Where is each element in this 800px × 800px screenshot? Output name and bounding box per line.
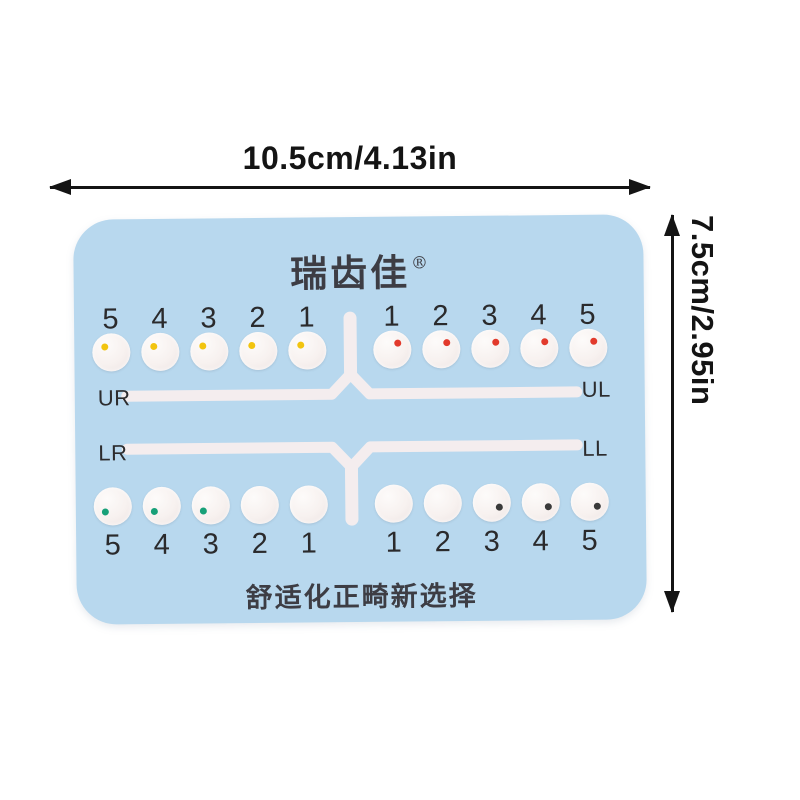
quadrant-label-lr: LR bbox=[98, 440, 127, 466]
tooth-number-label: 1 bbox=[300, 529, 316, 557]
upper-track-stem bbox=[350, 318, 351, 374]
color-dot bbox=[496, 503, 503, 510]
tooth-number-label: 5 bbox=[581, 527, 597, 555]
color-dot bbox=[541, 338, 548, 345]
bracket-row-UR: 54321 bbox=[86, 303, 332, 371]
tooth-number-label: 4 bbox=[151, 305, 167, 333]
bracket-disc bbox=[239, 332, 277, 370]
color-dot bbox=[249, 342, 256, 349]
bracket-cell: 2 bbox=[233, 304, 283, 370]
tooth-number-label: 5 bbox=[102, 305, 118, 333]
tooth-number-label: 3 bbox=[202, 530, 218, 558]
bracket-disc bbox=[569, 329, 607, 367]
bracket-disc bbox=[472, 484, 510, 522]
tooth-number-label: 4 bbox=[532, 527, 548, 555]
archwire-tracks bbox=[73, 214, 647, 624]
bracket-cell: 5 bbox=[563, 301, 613, 367]
bracket-cell: 4 bbox=[514, 301, 564, 367]
color-dot bbox=[545, 503, 552, 510]
bracket-cell: 2 bbox=[416, 302, 466, 368]
width-dimension-arrow bbox=[50, 186, 650, 189]
bracket-disc bbox=[422, 330, 460, 368]
tooth-number-label: 3 bbox=[481, 302, 497, 330]
color-dot bbox=[200, 508, 207, 515]
tooth-number-label: 5 bbox=[579, 301, 595, 329]
slogan-text: 舒适化正畸新选择 bbox=[77, 572, 647, 616]
tooth-number-label: 4 bbox=[153, 531, 169, 559]
color-dot bbox=[151, 343, 158, 350]
tooth-number-label: 3 bbox=[200, 304, 216, 332]
bracket-cell: 5 bbox=[565, 483, 615, 555]
upper-track-line bbox=[127, 372, 577, 396]
bracket-disc bbox=[93, 487, 131, 525]
bracket-cell: 4 bbox=[135, 305, 185, 371]
arrow-left-icon bbox=[49, 179, 71, 195]
color-dot bbox=[298, 342, 305, 349]
tooth-number-label: 3 bbox=[483, 528, 499, 556]
tooth-number-label: 1 bbox=[298, 303, 314, 331]
tooth-number-label: 1 bbox=[385, 529, 401, 557]
bracket-cell: 5 bbox=[88, 487, 138, 559]
bracket-disc bbox=[288, 331, 326, 369]
bracket-card: 瑞齿佳® UR UL LR LL 54321 12345 54321 12345… bbox=[73, 214, 647, 624]
bracket-disc bbox=[191, 486, 229, 524]
bracket-cell: 2 bbox=[235, 486, 285, 558]
bracket-cell: 3 bbox=[184, 304, 234, 370]
bracket-disc bbox=[423, 484, 461, 522]
bracket-disc bbox=[374, 485, 412, 523]
bracket-disc bbox=[289, 485, 327, 523]
bracket-cell: 1 bbox=[369, 484, 419, 556]
color-dot bbox=[443, 339, 450, 346]
bracket-cell: 5 bbox=[86, 305, 136, 371]
bracket-cell: 4 bbox=[516, 483, 566, 555]
bracket-cell: 2 bbox=[418, 484, 468, 556]
quadrant-label-ll: LL bbox=[582, 436, 608, 462]
tooth-number-label: 4 bbox=[530, 301, 546, 329]
bracket-disc bbox=[373, 331, 411, 369]
bracket-disc bbox=[190, 332, 228, 370]
height-dimension-arrow bbox=[671, 215, 674, 612]
bracket-disc bbox=[521, 483, 559, 521]
bracket-disc bbox=[240, 486, 278, 524]
color-dot bbox=[394, 339, 401, 346]
bracket-cell: 4 bbox=[137, 487, 187, 559]
color-dot bbox=[200, 343, 207, 350]
bracket-cell: 1 bbox=[282, 303, 332, 369]
bracket-disc bbox=[471, 330, 509, 368]
color-dot bbox=[590, 337, 597, 344]
bracket-disc bbox=[92, 333, 130, 371]
tooth-number-label: 2 bbox=[251, 530, 267, 558]
color-dot bbox=[102, 344, 109, 351]
arrow-right-icon bbox=[629, 179, 651, 195]
bracket-cell: 3 bbox=[467, 484, 517, 556]
bracket-row-UL: 12345 bbox=[367, 301, 613, 369]
quadrant-label-ul: UL bbox=[582, 377, 611, 403]
height-dimension-label: 7.5cm/2.95in bbox=[684, 215, 720, 612]
tooth-number-label: 1 bbox=[383, 303, 399, 331]
bracket-disc bbox=[142, 487, 180, 525]
bracket-row-LL: 12345 bbox=[369, 483, 615, 557]
arrow-up-icon bbox=[664, 214, 680, 236]
bracket-cell: 1 bbox=[284, 485, 334, 557]
bracket-disc bbox=[570, 483, 608, 521]
color-dot bbox=[594, 502, 601, 509]
tooth-number-label: 2 bbox=[434, 528, 450, 556]
color-dot bbox=[151, 508, 158, 515]
color-dot bbox=[492, 338, 499, 345]
tooth-number-label: 2 bbox=[432, 302, 448, 330]
tooth-number-label: 5 bbox=[104, 531, 120, 559]
arrow-down-icon bbox=[664, 591, 680, 613]
bracket-disc bbox=[520, 329, 558, 367]
bracket-cell: 1 bbox=[367, 302, 417, 368]
quadrant-label-ur: UR bbox=[98, 385, 131, 411]
width-dimension-label: 10.5cm/4.13in bbox=[50, 140, 650, 177]
bracket-row-LR: 54321 bbox=[88, 485, 334, 559]
bracket-cell: 3 bbox=[465, 302, 515, 368]
bracket-cell: 3 bbox=[186, 486, 236, 558]
color-dot bbox=[102, 509, 109, 516]
tooth-number-label: 2 bbox=[249, 304, 265, 332]
bracket-disc bbox=[141, 333, 179, 371]
